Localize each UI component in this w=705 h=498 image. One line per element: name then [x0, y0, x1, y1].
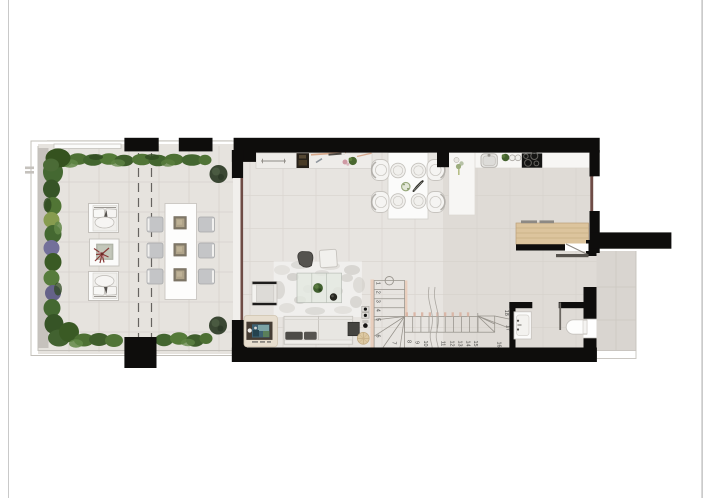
- svg-text:7: 7: [391, 342, 397, 345]
- svg-text:10: 10: [422, 341, 428, 347]
- svg-text:11: 11: [440, 341, 446, 347]
- svg-text:9: 9: [414, 341, 420, 344]
- svg-text:13: 13: [457, 341, 463, 347]
- svg-text:8: 8: [406, 340, 412, 343]
- svg-text:15: 15: [472, 341, 478, 347]
- svg-text:2: 2: [375, 291, 381, 294]
- svg-text:14: 14: [465, 341, 471, 347]
- svg-text:1: 1: [375, 282, 381, 285]
- svg-text:16: 16: [496, 342, 502, 348]
- svg-text:18: 18: [503, 310, 509, 316]
- svg-text:5: 5: [375, 318, 381, 321]
- svg-text:3: 3: [375, 300, 381, 303]
- svg-text:4: 4: [375, 309, 381, 312]
- svg-text:12: 12: [449, 341, 455, 347]
- svg-text:6: 6: [375, 335, 381, 338]
